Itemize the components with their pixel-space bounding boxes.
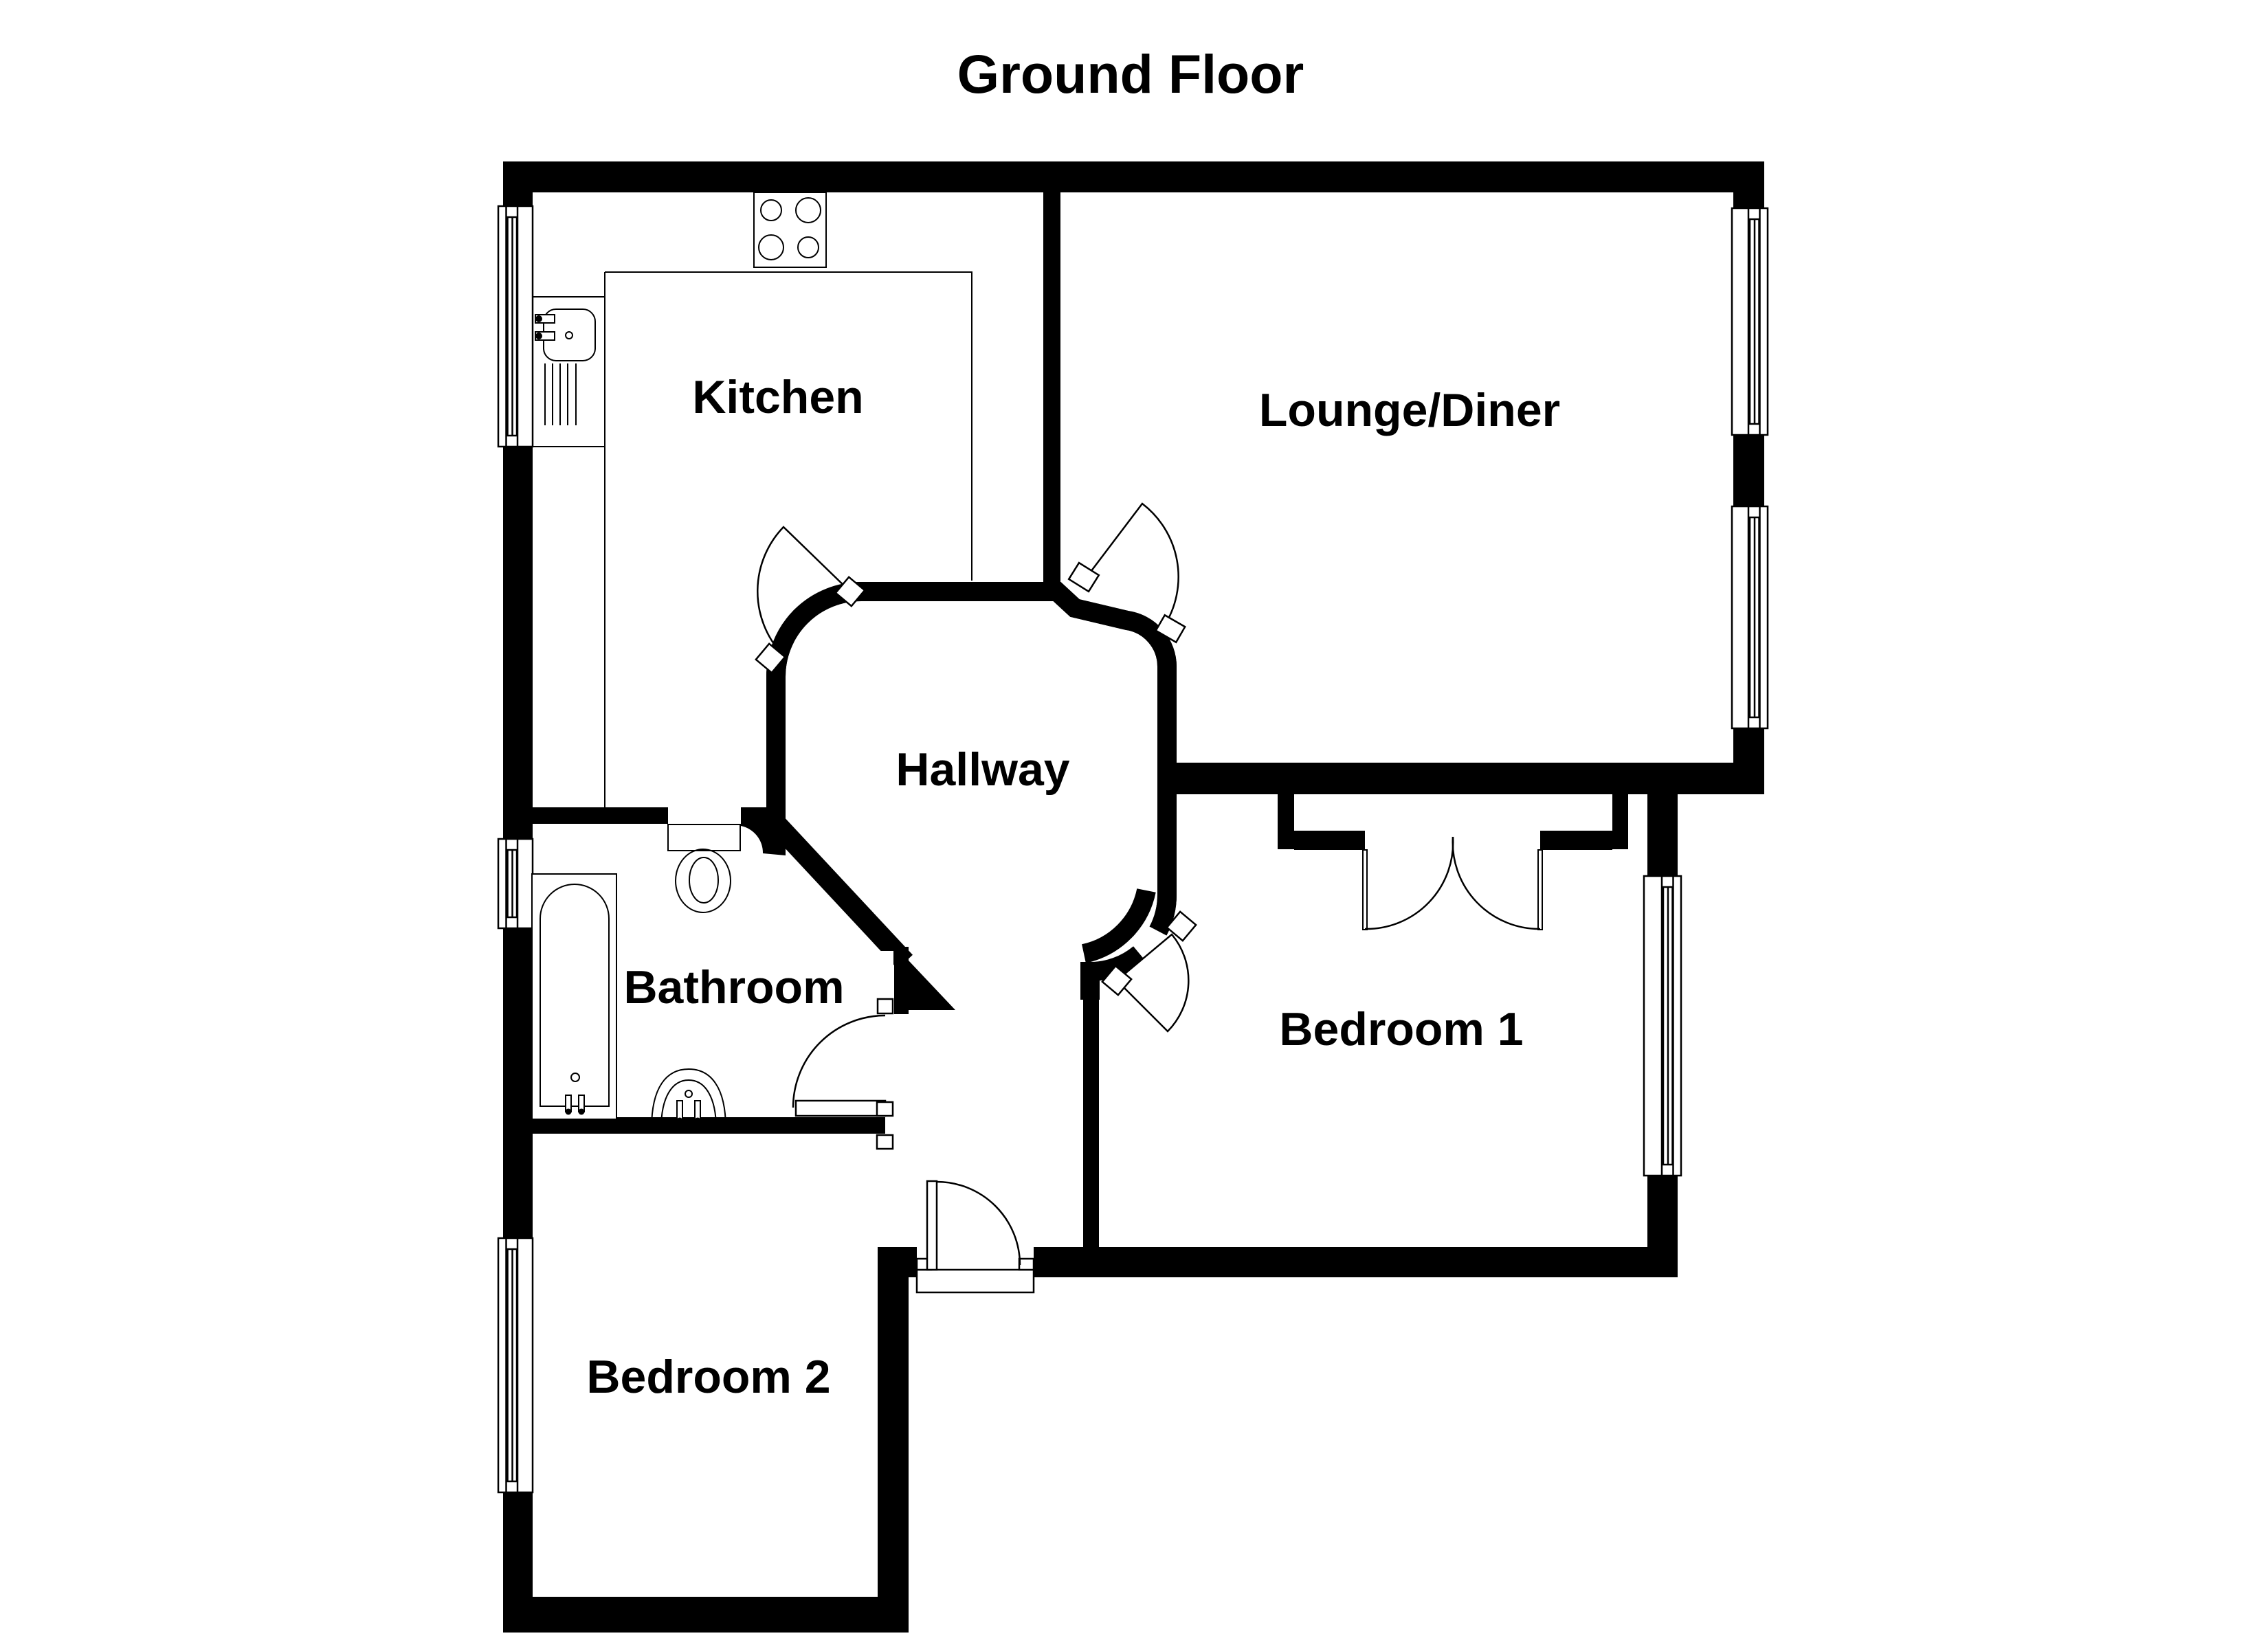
svg-text:Bathroom: Bathroom: [623, 961, 844, 1013]
svg-text:Bedroom 2: Bedroom 2: [586, 1351, 830, 1403]
svg-text:Lounge/Diner: Lounge/Diner: [1259, 384, 1560, 436]
svg-text:Hallway: Hallway: [896, 743, 1069, 796]
svg-text:Ground Floor: Ground Floor: [957, 43, 1304, 104]
svg-text:Kitchen: Kitchen: [692, 371, 863, 423]
svg-text:Bedroom 1: Bedroom 1: [1279, 1003, 1523, 1055]
